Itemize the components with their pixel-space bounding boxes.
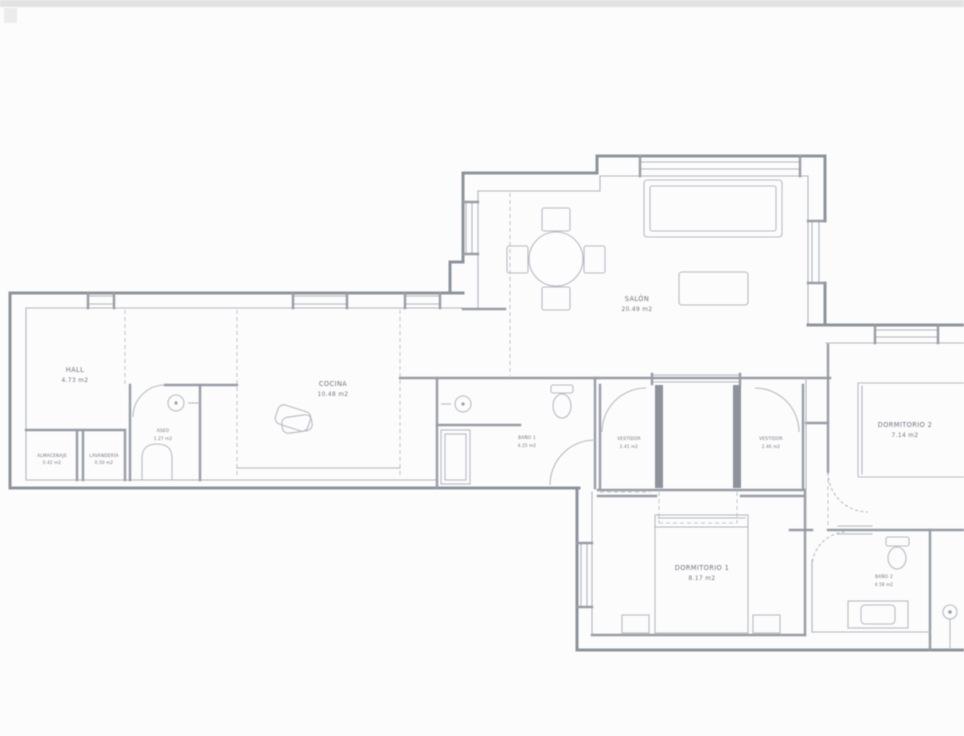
kitchen-stool-sketch — [274, 403, 313, 434]
fixtures — [142, 180, 964, 648]
door-arc-vestidor1 — [602, 388, 646, 432]
room-label-lavanderia: LAVANDERÍA 0.50 m2 — [89, 452, 118, 465]
sofa-icon — [644, 180, 782, 237]
room-name: BAÑO 1 — [518, 434, 536, 441]
room-label-aseo: ASEO 1.27 m2 — [154, 428, 173, 441]
aseo-sink-icon — [168, 395, 200, 411]
window-dorm1-left — [577, 543, 592, 607]
room-area: 4.73 m2 — [62, 378, 89, 384]
door-arc-aseo — [133, 385, 165, 417]
chair-icon — [542, 287, 570, 310]
wall-corridor-right — [733, 385, 741, 488]
dining-table-icon — [507, 208, 605, 310]
dashed-boundaries — [125, 193, 828, 528]
dorm1-bed-icon — [622, 515, 780, 633]
outer-walls — [10, 156, 964, 650]
room-label-bano2: BAÑO 2 4.58 m2 — [875, 573, 894, 587]
room-label-salon: SALÓN 20.49 m2 — [622, 294, 653, 313]
door-arc-bano1 — [550, 440, 595, 485]
window-salon-left — [463, 202, 478, 254]
room-name: DORMITORIO 2 — [878, 421, 933, 429]
room-name: COCINA — [319, 380, 347, 388]
room-label-vestidor-der: VESTIDOR 2.46 m2 — [759, 436, 783, 449]
room-label-dormitorio2: DORMITORIO 2 7.14 m2 — [878, 421, 933, 439]
wall-corridor-left — [655, 385, 663, 488]
room-name: ASEO — [157, 428, 170, 434]
room-label-cocina: COCINA 10.48 m2 — [318, 380, 349, 398]
floor-plan-svg: HALL 4.73 m2 ALMACENAJE 0.42 m2 LAVANDER… — [0, 0, 964, 736]
window-hall — [88, 293, 114, 308]
wall-salon-left-step — [450, 262, 463, 293]
room-name: VESTIDOR — [617, 436, 641, 442]
room-label-vestidor-izq: VESTIDOR 2.41 m2 — [617, 436, 641, 449]
chair-icon — [542, 208, 570, 231]
room-name: SALÓN — [625, 294, 649, 303]
room-area: 20.49 m2 — [622, 307, 653, 313]
room-label-bano1: BAÑO 1 4.25 m2 — [518, 434, 537, 448]
room-name: LAVANDERÍA — [89, 452, 118, 459]
aseo-shower-icon — [142, 444, 172, 480]
window-salon-right — [808, 221, 825, 283]
room-name: HALL — [66, 366, 84, 374]
windows — [88, 156, 938, 607]
floor-plan-image: HALL 4.73 m2 ALMACENAJE 0.42 m2 LAVANDER… — [0, 0, 964, 736]
room-area: 8.17 m2 — [689, 576, 716, 582]
room-label-hall: HALL 4.73 m2 — [62, 366, 89, 384]
door-arc-vestidor2 — [755, 388, 799, 432]
room-name: BAÑO 2 — [875, 573, 893, 580]
room-label-almacenaje: ALMACENAJE 0.42 m2 — [37, 453, 67, 465]
room-area: 1.27 m2 — [154, 436, 173, 441]
room-area: 0.50 m2 — [95, 460, 114, 465]
door-arc-dorm2 — [828, 472, 868, 512]
bano2-vanity-icon — [848, 601, 908, 628]
door-arc-bano2 — [812, 532, 847, 567]
room-area: 0.42 m2 — [43, 460, 62, 465]
room-label-dormitorio1: DORMITORIO 1 8.17 m2 — [675, 564, 730, 582]
window-salon-top — [640, 156, 800, 176]
room-area: 7.14 m2 — [892, 433, 919, 439]
wall-lamp-icon — [943, 605, 957, 648]
window-entry — [405, 293, 440, 308]
window-cocina-1 — [293, 293, 347, 308]
room-area: 10.48 m2 — [318, 392, 349, 398]
bano2-toilet-icon — [886, 537, 909, 569]
doors — [133, 385, 868, 567]
room-area: 4.25 m2 — [518, 443, 537, 448]
room-area: 2.46 m2 — [762, 444, 781, 449]
coffee-table-icon — [679, 272, 748, 305]
chair-icon — [584, 246, 605, 273]
top-left-artifact — [4, 8, 17, 23]
top-strip — [0, 0, 964, 7]
window-dorm2-top — [875, 325, 938, 343]
room-area: 2.41 m2 — [620, 444, 639, 449]
room-labels: HALL 4.73 m2 ALMACENAJE 0.42 m2 LAVANDER… — [37, 294, 932, 587]
bano1-sink-icon — [441, 396, 471, 412]
room-area: 4.58 m2 — [875, 582, 894, 587]
room-name: ALMACENAJE — [37, 453, 67, 459]
nightstand-icon — [753, 615, 780, 633]
wall-dorm1-top — [598, 490, 805, 496]
room-name: DORMITORIO 1 — [675, 564, 730, 572]
bano1-shower-icon — [441, 430, 470, 484]
nightstand-icon — [622, 615, 649, 633]
room-name: VESTIDOR — [759, 436, 783, 442]
dorm2-bed-icon — [858, 383, 964, 477]
bano1-toilet-icon — [551, 385, 573, 418]
